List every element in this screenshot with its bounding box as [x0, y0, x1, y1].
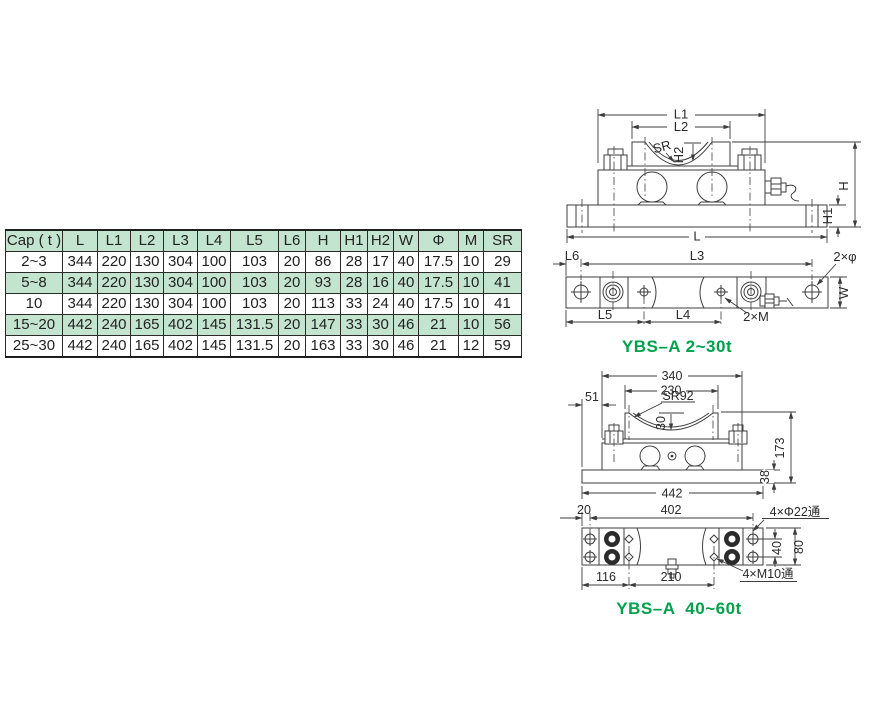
top-view-2-30t: L6 L3 2×φ W L5 L4 2×M	[553, 248, 857, 327]
dim-label-340: 340	[662, 369, 683, 383]
dim-label-80: 80	[792, 540, 806, 554]
dim-label-l: L	[693, 229, 700, 244]
front-view-40-60t: 340 230 SR92 51 30 173 38	[568, 369, 796, 501]
dim-label-173: 173	[773, 438, 787, 459]
dim-label-l3: L3	[690, 248, 704, 263]
dim-label-l6: L6	[565, 248, 579, 263]
dim-label-40: 40	[770, 541, 784, 555]
dim-label-h1: H1	[820, 208, 835, 225]
dim-label-2xm: 2×M	[743, 309, 769, 324]
dim-label-20: 20	[577, 503, 591, 517]
dim-label-2xphi: 2×φ	[833, 249, 856, 264]
dim-label-l4: L4	[676, 307, 690, 322]
dim-label-sr: SR	[651, 137, 672, 156]
dim-label-l5: L5	[598, 307, 612, 322]
dim-label-l2: L2	[674, 119, 688, 134]
dim-label-116: 116	[596, 570, 616, 584]
dim-label-m10-holes: 4×M10通	[742, 567, 794, 581]
model-label-2-30t: YBS–A 2~30t	[596, 337, 758, 357]
dim-label-442: 442	[662, 487, 683, 501]
dim-label-402: 402	[661, 503, 682, 517]
dim-label-51: 51	[585, 390, 599, 404]
dim-label-w: W	[836, 286, 851, 299]
front-view-2-30t: L1 L2 SR H2 L H H1	[567, 107, 861, 244]
model-label-40-60t: YBS–A 40~60t	[596, 599, 762, 619]
dim-label-h: H	[836, 181, 851, 190]
dim-label-38: 38	[758, 470, 772, 484]
dim-label-phi22-holes: 4×Φ22通	[770, 505, 821, 519]
spec-sheet-page: Cap ( t ) L L1 L2 L3 L4 L5 L6 H H1 H2 W …	[0, 0, 878, 711]
dim-label-h2: H2	[671, 147, 686, 164]
top-view-40-60t: 20 402 4×Φ22通 40 80 4×M10通 116 210	[560, 503, 829, 590]
dim-label-210: 210	[661, 570, 682, 584]
dim-label-sr92: SR92	[662, 389, 693, 403]
dim-label-30: 30	[654, 416, 668, 430]
